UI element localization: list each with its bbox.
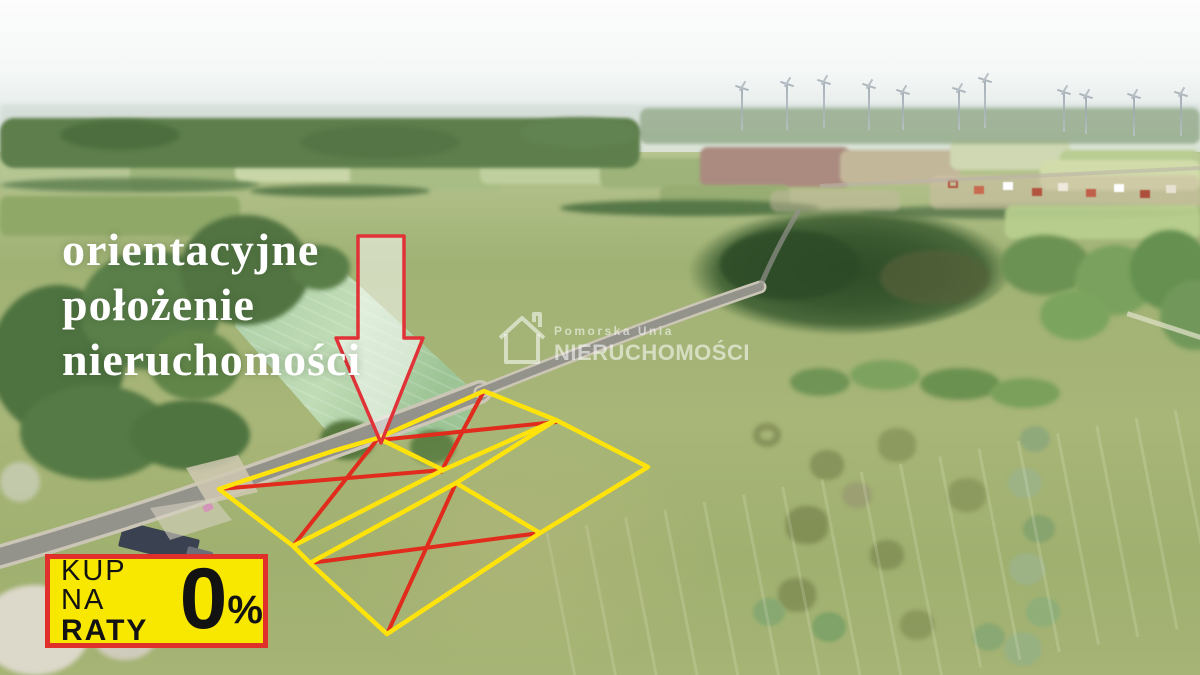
- house-walls: [506, 334, 538, 362]
- badge-zero: 0: [180, 566, 228, 633]
- badge-line-raty: RATY: [61, 616, 178, 646]
- annotation-line: nieruchomości: [62, 332, 482, 387]
- annotation-line: orientacyjne: [62, 222, 482, 277]
- plot-outline: [219, 391, 648, 634]
- plot-inner-boundary: [378, 438, 443, 470]
- annotation-line: położenie: [62, 277, 482, 332]
- house-outline-icon: [496, 308, 548, 366]
- badge-percent: %: [227, 588, 263, 633]
- installment-badge: KUP NA RATY 0 %: [45, 554, 268, 648]
- plot-inner-boundary: [456, 483, 540, 533]
- watermark-brand-large: NIERUCHOMOŚCI: [554, 340, 750, 366]
- plot-boundary-lines: [219, 391, 648, 634]
- aerial-photo-listing: Pomorska Unia NIERUCHOMOŚCI orientacyjne…: [0, 0, 1200, 675]
- house-chimney: [534, 314, 540, 327]
- badge-line-kup-na: KUP NA: [61, 557, 178, 615]
- watermark: Pomorska Unia NIERUCHOMOŚCI: [496, 308, 750, 366]
- watermark-brand-small: Pomorska Unia: [554, 324, 750, 338]
- annotation-text: orientacyjne położenie nieruchomości: [62, 222, 482, 387]
